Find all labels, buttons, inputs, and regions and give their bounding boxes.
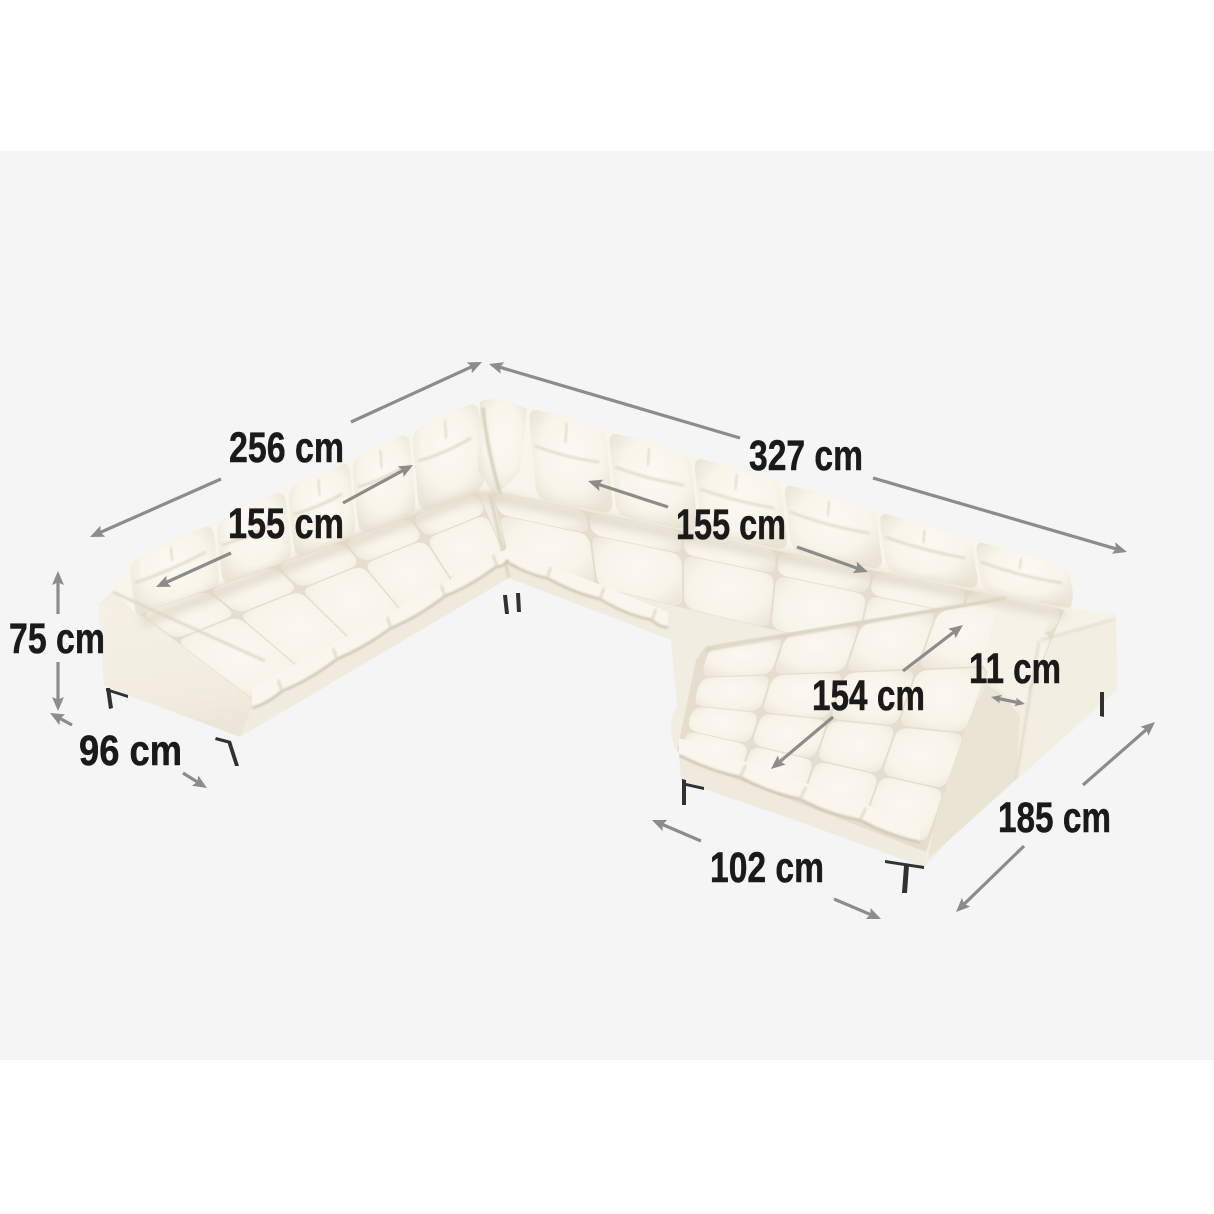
svg-text:102 cm: 102 cm: [710, 845, 824, 892]
svg-text:11 cm: 11 cm: [969, 646, 1061, 693]
svg-text:96 cm: 96 cm: [79, 728, 182, 775]
svg-text:256 cm: 256 cm: [229, 425, 344, 472]
svg-text:327 cm: 327 cm: [749, 433, 863, 480]
svg-text:154 cm: 154 cm: [812, 673, 925, 720]
svg-text:155 cm: 155 cm: [228, 501, 344, 548]
svg-text:185 cm: 185 cm: [998, 795, 1111, 842]
svg-text:155 cm: 155 cm: [676, 502, 786, 549]
svg-text:75 cm: 75 cm: [9, 616, 105, 663]
